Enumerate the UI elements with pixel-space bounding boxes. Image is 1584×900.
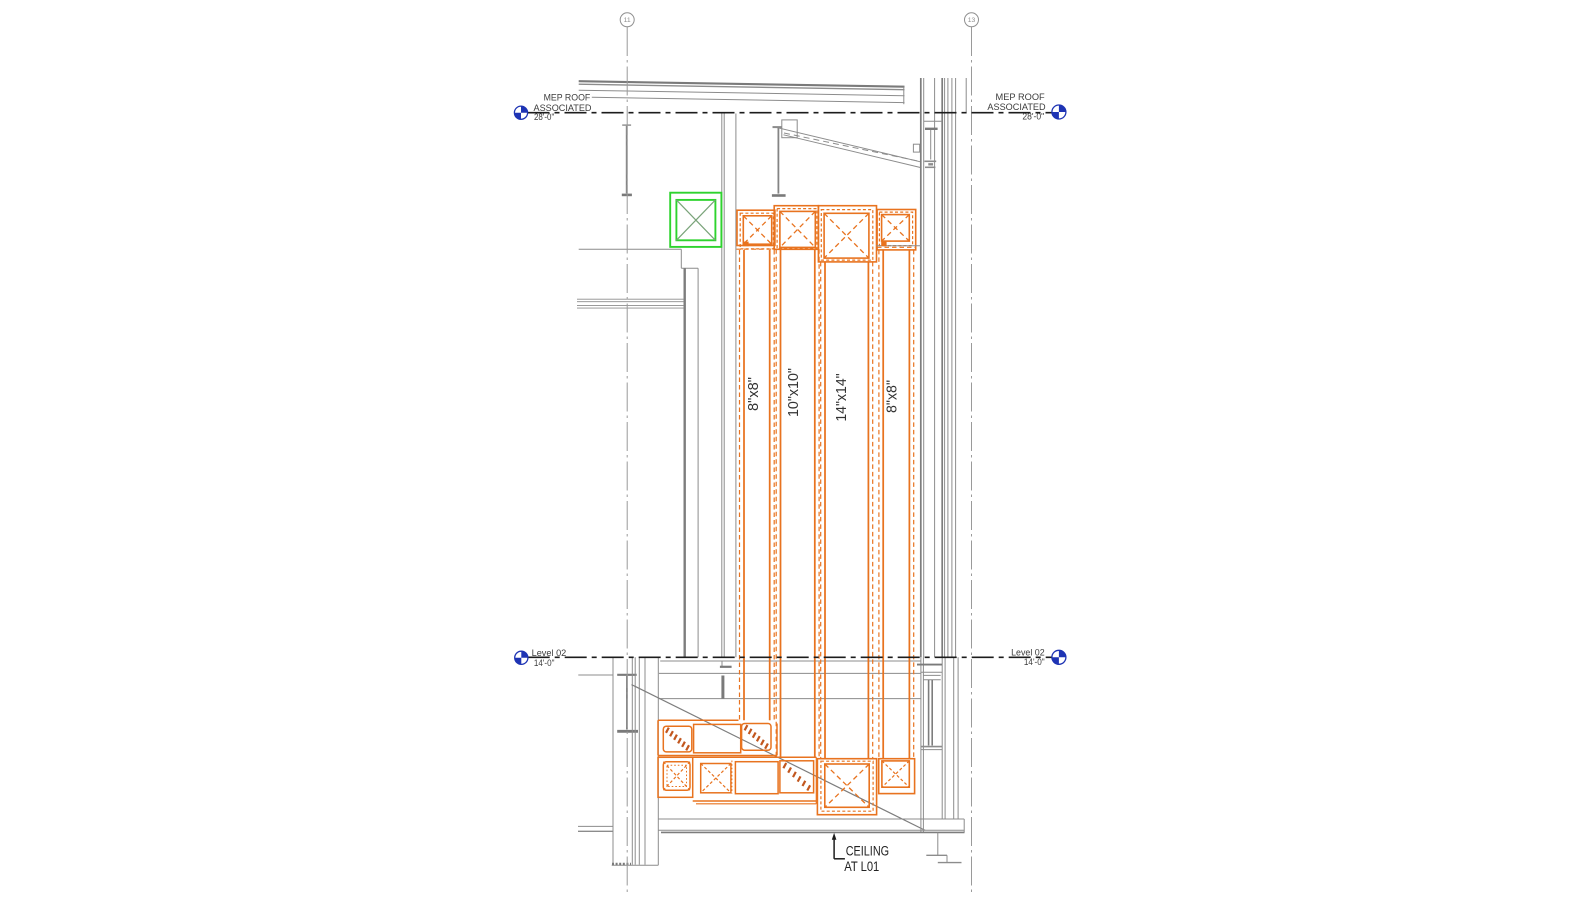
svg-text:10"x10": 10"x10" [785, 368, 802, 417]
svg-text:28'-0": 28'-0" [1022, 112, 1044, 123]
svg-text:28'-0": 28'-0" [534, 112, 554, 123]
svg-text:AT L01: AT L01 [844, 859, 879, 875]
svg-text:13: 13 [968, 17, 976, 24]
svg-text:8"x8": 8"x8" [884, 380, 901, 413]
svg-text:MEP ROOF: MEP ROOF [544, 92, 591, 103]
svg-text:11: 11 [624, 17, 631, 24]
svg-text:8"x8": 8"x8" [745, 377, 762, 411]
svg-text:14"x14": 14"x14" [833, 373, 850, 421]
svg-text:14'-0": 14'-0" [534, 658, 555, 669]
svg-text:CEILING: CEILING [846, 843, 889, 859]
svg-text:14'-0": 14'-0" [1024, 657, 1045, 668]
